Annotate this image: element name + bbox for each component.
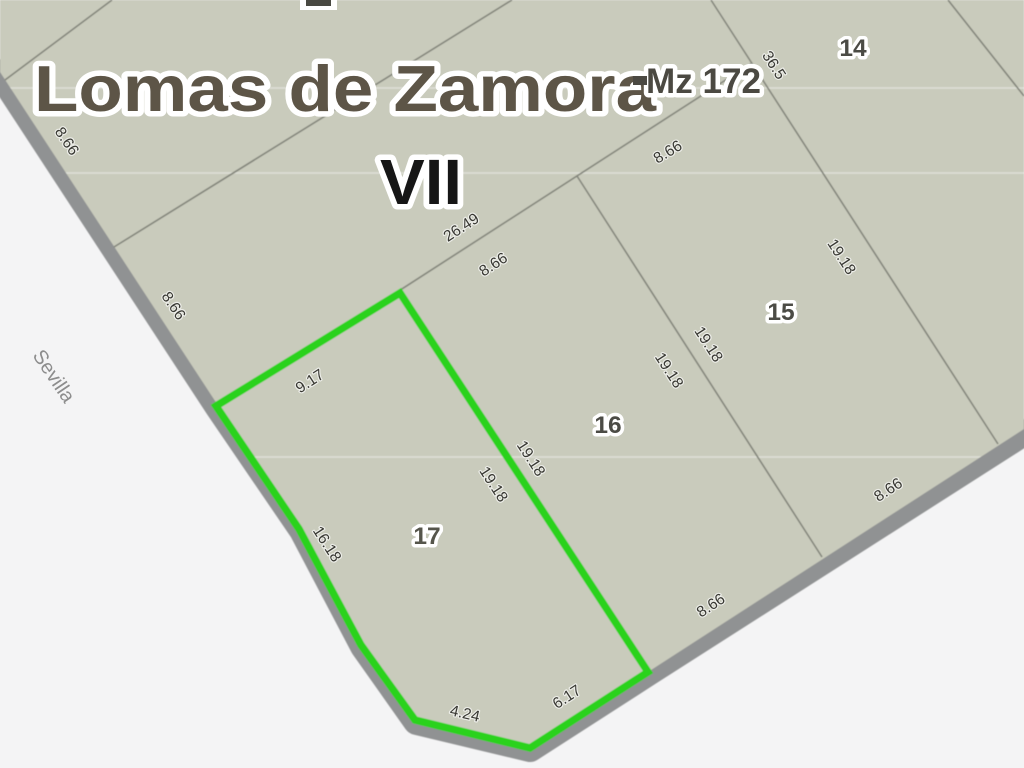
svg-text:Mz 172: Mz 172 xyxy=(646,62,761,101)
svg-text:Lomas de Zamora: Lomas de Zamora xyxy=(34,52,657,125)
svg-text:15: 15 xyxy=(767,299,794,326)
svg-text:17: 17 xyxy=(413,523,440,550)
svg-text:16: 16 xyxy=(594,412,621,439)
svg-text:VII: VII xyxy=(380,146,462,218)
svg-text:14: 14 xyxy=(839,35,867,62)
